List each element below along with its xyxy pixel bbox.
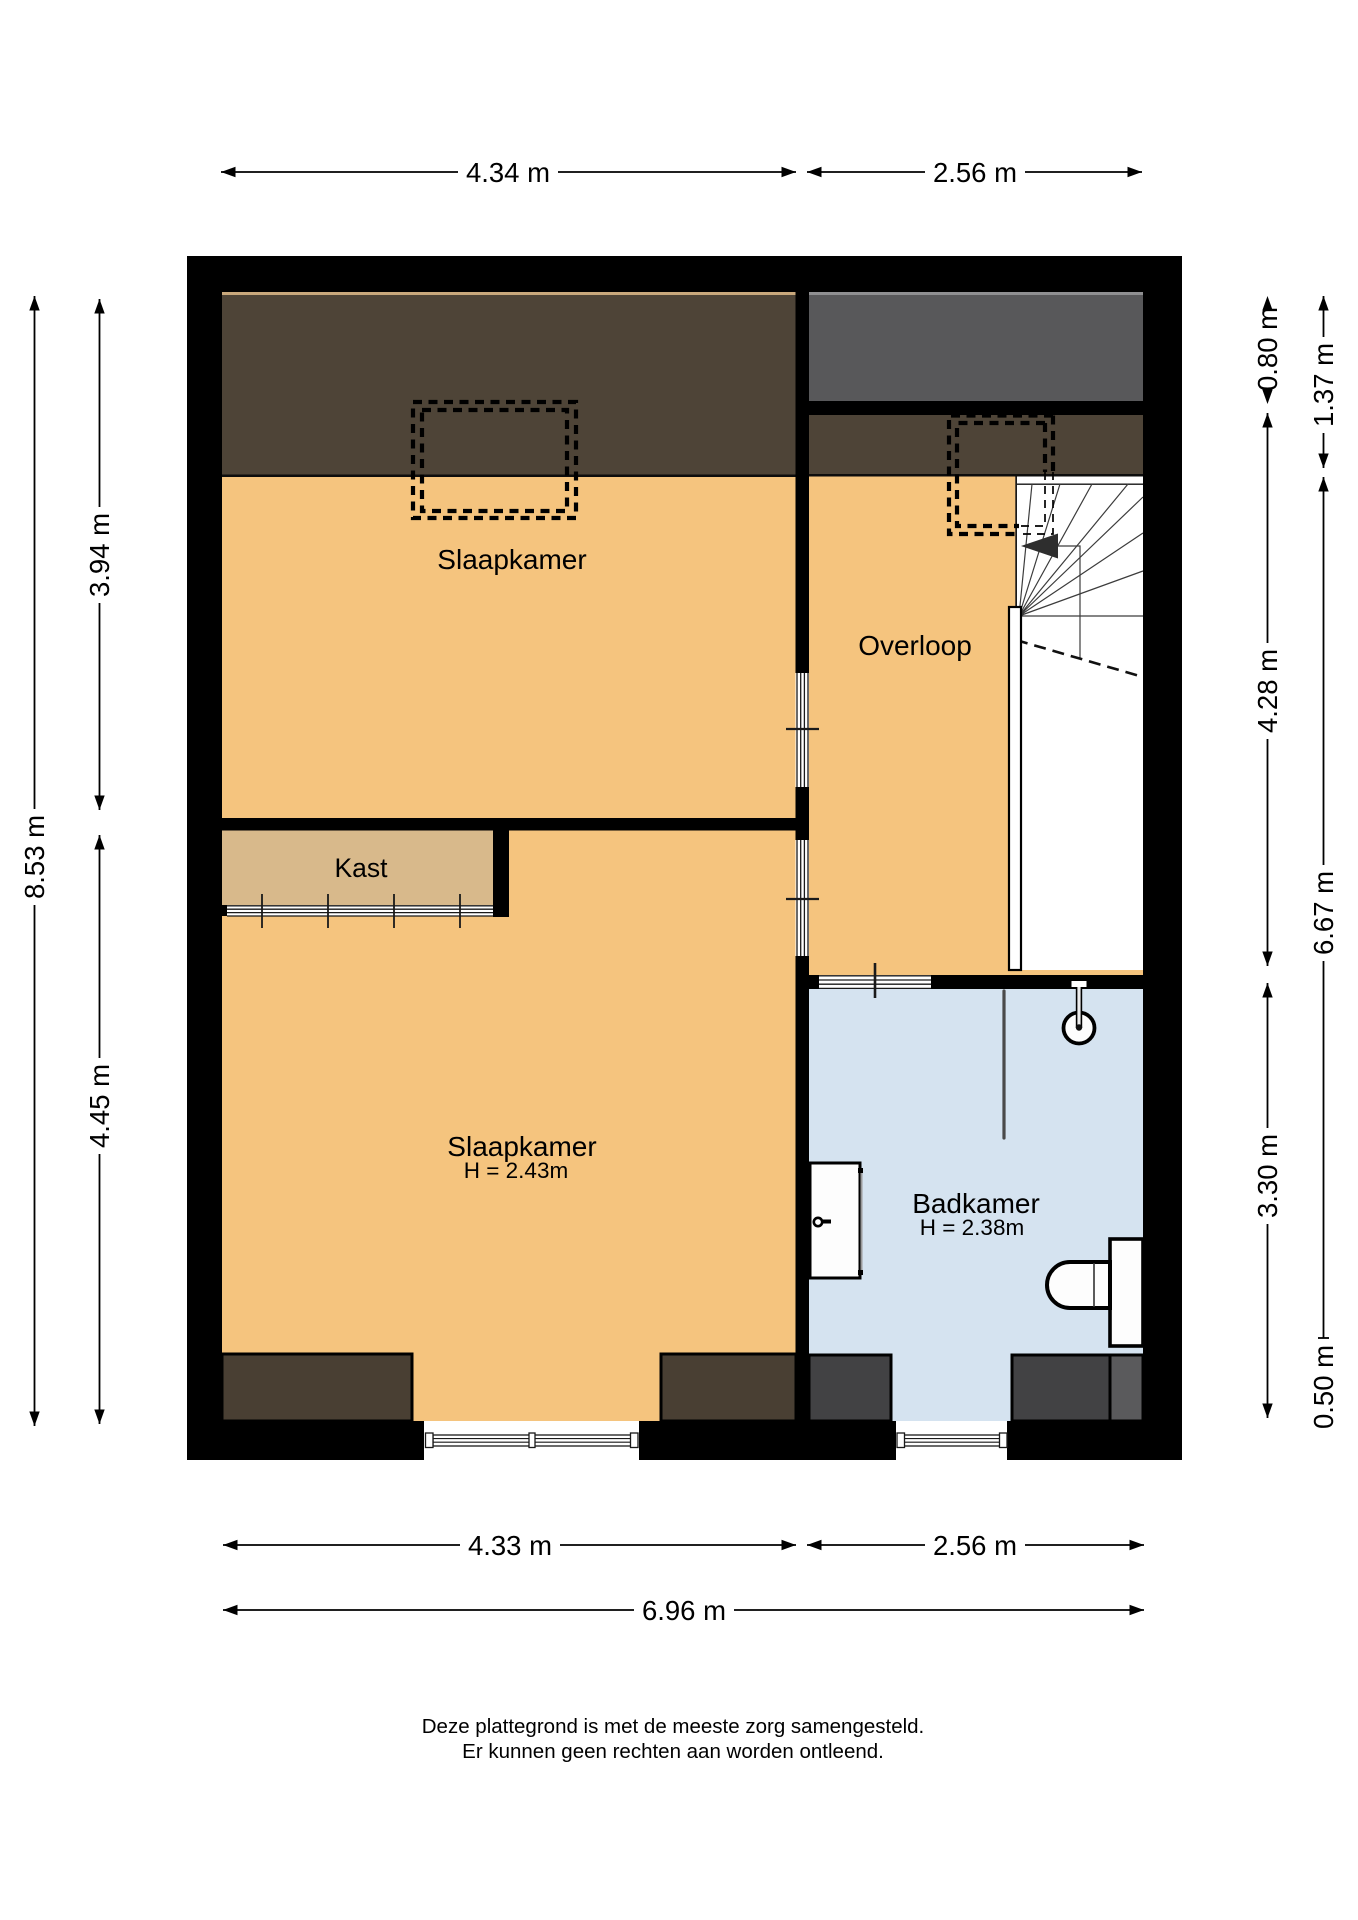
svg-text:Overloop: Overloop	[858, 630, 972, 661]
svg-text:Deze plattegrond is met de mee: Deze plattegrond is met de meeste zorg s…	[422, 1715, 925, 1738]
svg-text:6.67 m: 6.67 m	[1308, 871, 1339, 955]
svg-text:1.37 m: 1.37 m	[1308, 343, 1339, 427]
svg-text:2.56 m: 2.56 m	[933, 1530, 1017, 1561]
svg-text:2.56 m: 2.56 m	[933, 157, 1017, 188]
svg-text:6.96 m: 6.96 m	[642, 1595, 726, 1626]
svg-text:4.45 m: 4.45 m	[84, 1064, 115, 1148]
svg-text:4.28 m: 4.28 m	[1252, 649, 1283, 733]
svg-text:8.53 m: 8.53 m	[19, 815, 50, 899]
svg-text:Er kunnen geen rechten aan wor: Er kunnen geen rechten aan worden ontlee…	[462, 1740, 884, 1763]
svg-text:H = 2.43m: H = 2.43m	[464, 1158, 568, 1183]
svg-text:0.80 m: 0.80 m	[1252, 307, 1283, 391]
svg-text:4.34 m: 4.34 m	[466, 157, 550, 188]
svg-text:3.30 m: 3.30 m	[1252, 1134, 1283, 1218]
svg-text:Kast: Kast	[334, 853, 388, 883]
svg-text:H = 2.38m: H = 2.38m	[920, 1215, 1024, 1240]
svg-text:3.94 m: 3.94 m	[84, 513, 115, 597]
svg-text:4.33 m: 4.33 m	[468, 1530, 552, 1561]
svg-text:Slaapkamer: Slaapkamer	[437, 544, 586, 575]
svg-text:0.50 m: 0.50 m	[1308, 1345, 1339, 1429]
